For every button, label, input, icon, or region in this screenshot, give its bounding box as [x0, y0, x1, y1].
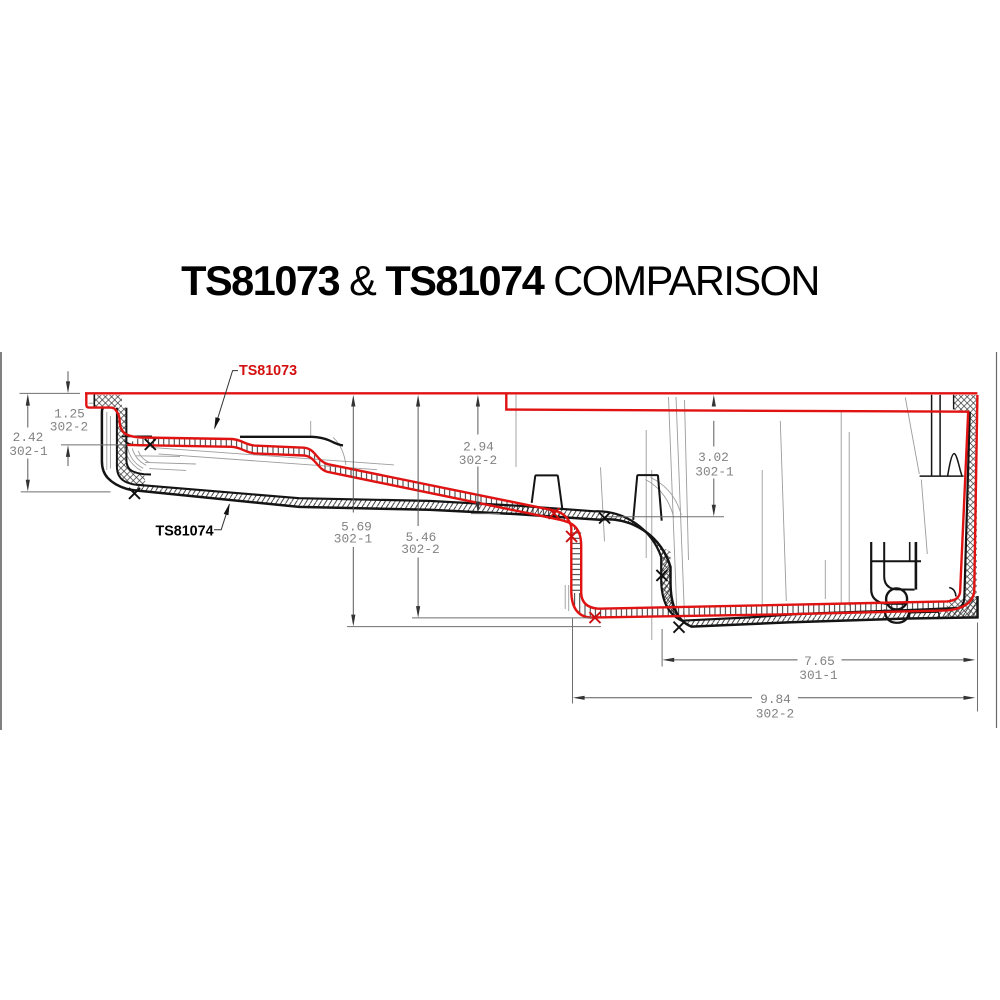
svg-text:302-1: 302-1	[9, 444, 48, 459]
svg-text:302-2: 302-2	[756, 706, 794, 721]
svg-text:302-2: 302-2	[50, 419, 88, 434]
svg-text:302-2: 302-2	[459, 453, 497, 468]
svg-text:302-2: 302-2	[401, 542, 439, 557]
svg-text:301-1: 301-1	[799, 668, 838, 683]
svg-text:TS81073 & TS81074 COMPARISON: TS81073 & TS81074 COMPARISON	[181, 257, 819, 304]
svg-text:TS81073: TS81073	[239, 363, 297, 379]
svg-text:302-1: 302-1	[334, 531, 373, 546]
svg-text:TS81074: TS81074	[156, 523, 214, 539]
svg-text:302-1: 302-1	[695, 464, 734, 479]
svg-text:9.84: 9.84	[760, 692, 791, 707]
svg-text:7.65: 7.65	[804, 654, 835, 669]
svg-text:3.02: 3.02	[698, 450, 729, 465]
svg-text:2.42: 2.42	[13, 430, 44, 445]
